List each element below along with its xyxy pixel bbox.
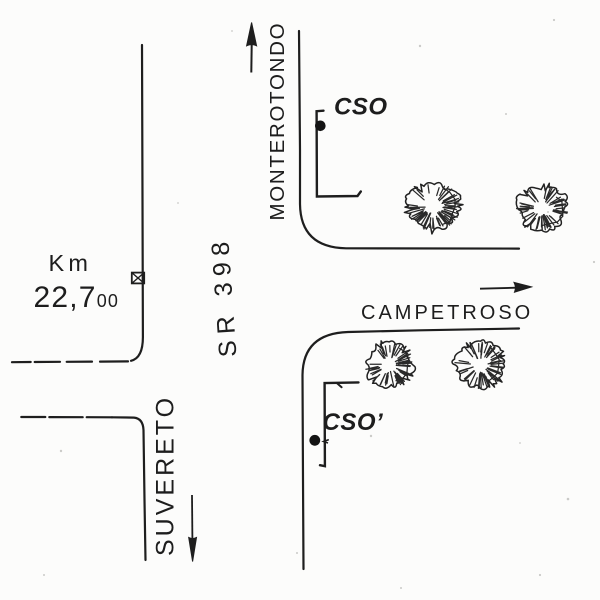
svg-text:CSO: CSO: [334, 94, 388, 121]
svg-text:MONTEROTONDO: MONTEROTONDO: [266, 22, 289, 221]
svg-text:CAMPETROSO: CAMPETROSO: [361, 302, 533, 324]
svg-text:SUVERETO: SUVERETO: [152, 395, 180, 556]
svg-text:CSO’: CSO’: [323, 409, 384, 436]
svg-text:Km: Km: [49, 250, 93, 276]
svg-text:22,700: 22,700: [34, 281, 120, 314]
svg-text:SR 398: SR 398: [206, 235, 242, 358]
